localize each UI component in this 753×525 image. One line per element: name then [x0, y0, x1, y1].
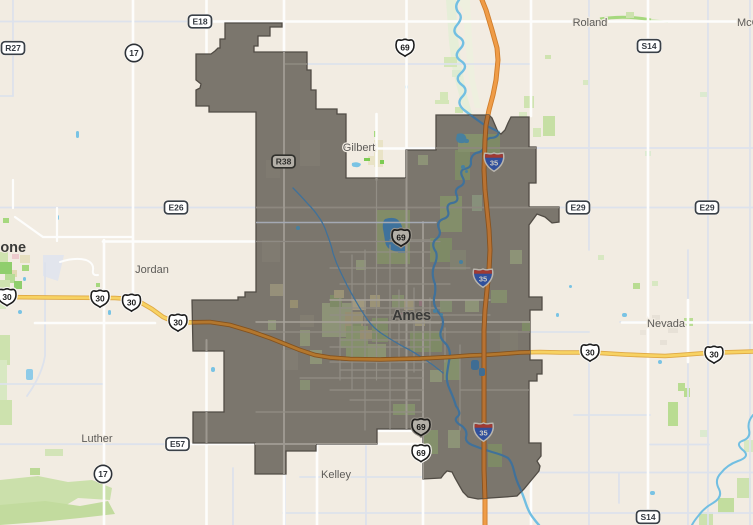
- svg-text:69: 69: [416, 422, 426, 432]
- svg-text:Boone: Boone: [0, 240, 26, 256]
- svg-text:30: 30: [709, 350, 719, 360]
- svg-text:Luther: Luther: [81, 433, 113, 445]
- svg-text:E57: E57: [170, 439, 185, 449]
- svg-text:17: 17: [98, 469, 108, 479]
- svg-text:Ames: Ames: [392, 308, 431, 324]
- svg-text:30: 30: [2, 292, 12, 302]
- svg-text:E18: E18: [192, 17, 207, 27]
- svg-text:Kelley: Kelley: [321, 469, 351, 481]
- svg-text:30: 30: [127, 298, 137, 308]
- svg-text:30: 30: [585, 348, 595, 358]
- svg-text:E29: E29: [570, 203, 585, 213]
- svg-text:S14: S14: [640, 512, 655, 522]
- svg-text:Roland: Roland: [573, 17, 608, 29]
- svg-text:69: 69: [416, 448, 426, 458]
- svg-text:69: 69: [396, 233, 406, 243]
- svg-text:Gilbert: Gilbert: [343, 142, 375, 154]
- svg-text:30: 30: [95, 294, 105, 304]
- svg-text:Jordan: Jordan: [135, 264, 169, 276]
- svg-text:S14: S14: [641, 41, 656, 51]
- svg-text:30: 30: [173, 318, 183, 328]
- svg-text:17: 17: [129, 48, 139, 58]
- svg-text:R27: R27: [5, 43, 21, 53]
- svg-text:35: 35: [490, 158, 498, 167]
- svg-text:E26: E26: [168, 203, 183, 213]
- svg-text:Nevada: Nevada: [647, 318, 686, 330]
- svg-text:E29: E29: [699, 203, 714, 213]
- svg-text:35: 35: [479, 428, 487, 437]
- svg-text:R38: R38: [276, 157, 292, 167]
- svg-text:69: 69: [400, 43, 410, 53]
- svg-text:McCallsburg: McCallsburg: [737, 17, 753, 29]
- svg-text:35: 35: [479, 274, 487, 283]
